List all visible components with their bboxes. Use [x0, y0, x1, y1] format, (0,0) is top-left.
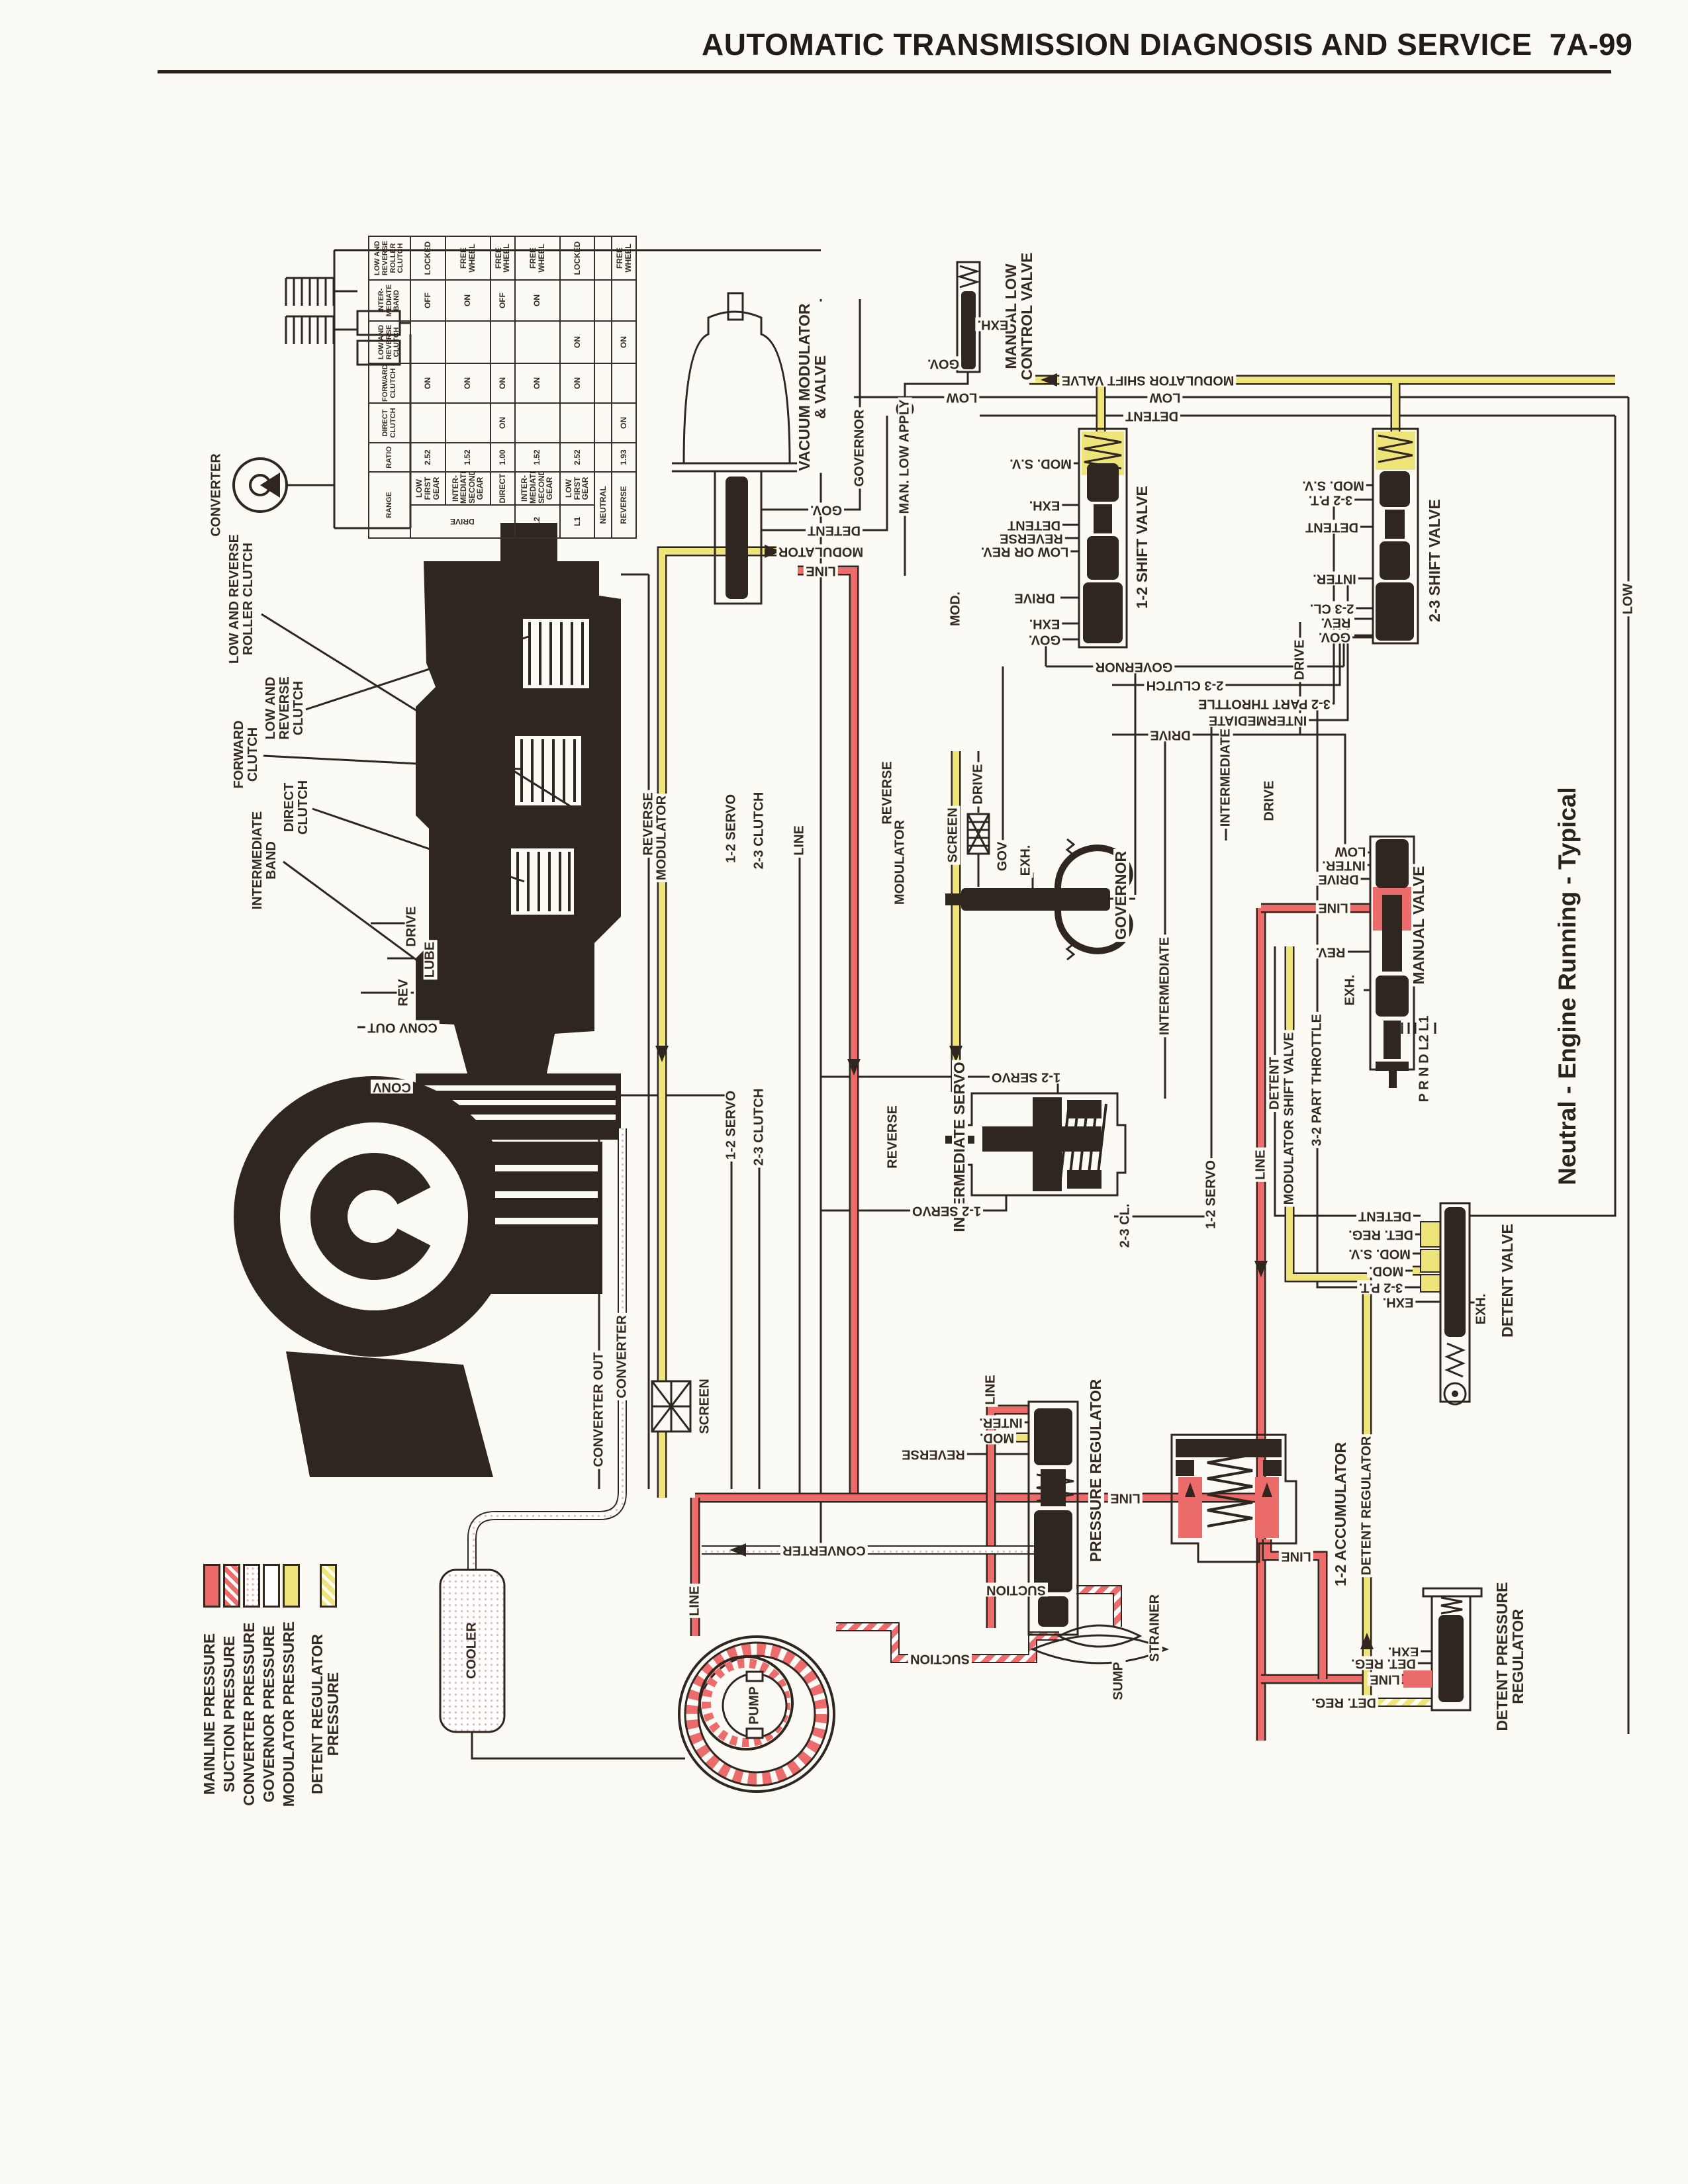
shift23-port-mod-sv: MOD. S.V.	[1300, 478, 1366, 492]
line-label-converter-a: CONVERTER	[616, 1313, 630, 1400]
pressure-regulator-port-reverse: REVERSE	[900, 1447, 967, 1461]
chart-cell	[594, 443, 612, 472]
pressure-regulator-title: PRESSURE REGULATOR	[1088, 1377, 1104, 1564]
manual-low-control-valve-title: MANUAL LOW CONTROL VALVE	[1004, 251, 1035, 383]
line-label-modulator-a: MODULATOR	[655, 794, 669, 882]
line-label-governor-a: GOVERNOR	[853, 408, 867, 489]
chart-cell: 2.52	[410, 443, 445, 472]
chart-cell: ON	[515, 363, 560, 403]
chart-cell: 1.93	[612, 443, 636, 472]
detent-valve-drawing	[1421, 1203, 1470, 1404]
chart-cell	[560, 403, 594, 443]
shift23-port-detent: DETENT	[1303, 520, 1360, 534]
chart-cell: LOCKED	[560, 236, 594, 280]
chart-header-band: INTER- MEDIATE BAND	[369, 280, 410, 321]
chart-cell: ON	[612, 321, 636, 363]
chart-header-direct: DIRECT CLUTCH	[369, 403, 410, 443]
chart-cell	[410, 321, 445, 363]
chart-cell: LOW FIRST GEAR	[410, 472, 445, 505]
chart-cell	[410, 403, 445, 443]
line-label-intermediate-c: INTERMEDIATE	[1158, 935, 1172, 1038]
chart-cell	[445, 321, 491, 363]
cooler-title: COOLER	[465, 1620, 479, 1681]
line-label-12servo-a: 1-2 SERVO	[725, 792, 739, 865]
chart-header-low-reverse: LOW AND REVERSE CLUTCH	[369, 321, 410, 363]
legend-label-governor: GOVERNOR PRESSURE	[261, 1623, 277, 1804]
line-label-detent-regulator: DETENT REGULATOR	[1360, 1434, 1374, 1577]
accumulator-12-title: 1-2 ACCUMULATOR	[1333, 1440, 1349, 1588]
chart-cell	[594, 363, 612, 403]
legend-label-converter: CONVERTER PRESSURE	[242, 1620, 258, 1807]
transmission-cross-section	[234, 523, 621, 1477]
legend-label-suction: SUCTION PRESSURE	[222, 1634, 238, 1794]
shift23-port-rev: REV.	[1319, 615, 1353, 629]
chart-range-l1: L1	[560, 505, 594, 538]
line-label-32pt-b: 3-2 PART THROTTLE	[1311, 1012, 1325, 1148]
shift-valve-12-title: 1-2 SHIFT VALVE	[1135, 484, 1150, 611]
shift23-port-32pt: 3-2 P.T.	[1307, 493, 1354, 507]
line-label-reverse-b: REVERSE	[881, 759, 895, 827]
manual-low-control-port-exh: EXH.	[976, 318, 1011, 332]
vacuum-modulator-title: VACUUM MODULATOR & VALVE	[797, 302, 829, 473]
line-label-suction-a: SUCTION	[908, 1652, 972, 1666]
sump-label: SUMP	[1112, 1660, 1126, 1702]
pressure-regulator-port-inter: INTER.	[977, 1416, 1025, 1430]
chart-cell	[594, 236, 612, 280]
line-label-line-d: LINE	[688, 1584, 702, 1618]
chart-cell: ON	[515, 280, 560, 321]
detent-valve-port-32pt: 3-2 P.T.	[1357, 1281, 1405, 1295]
line-label-drive-c: DRIVE	[1263, 778, 1277, 823]
chart-cell: LOW FIRST GEAR	[560, 472, 594, 505]
line-label-32pt-a: 3-2 PART THROTTLE	[1196, 697, 1333, 711]
application-chart: RANGE RATIO DIRECT CLUTCH FORWARD CLUTCH…	[368, 246, 637, 539]
line-label-low-b: LOW	[1148, 390, 1183, 404]
manual-valve-title: MANUAL VALVE	[1411, 864, 1427, 987]
chart-cell: INTER- MEDIATE SECOND GEAR	[515, 472, 560, 505]
figure-caption: Neutral - Engine Running - Typical	[1554, 787, 1581, 1185]
chart-cell	[515, 403, 560, 443]
servo-port-12servo-bottom: 1-2 SERVO	[910, 1204, 983, 1218]
chart-cell: ON	[560, 363, 594, 403]
detent-pressure-regulator-title: DETENT PRESSURE REGULATOR	[1495, 1580, 1526, 1733]
chart-cell	[612, 363, 636, 403]
chart-cell: ON	[445, 363, 491, 403]
line-label-governor-b: GOVERNOR	[1094, 660, 1175, 674]
chart-cell: ON	[445, 280, 491, 321]
manual-valve-port-rev: REV.	[1314, 945, 1348, 959]
chart-header-roller: LOW AND REVERSE ROLLER CLUTCH	[369, 236, 410, 280]
detent-valve-port-detent: DETENT	[1356, 1209, 1413, 1223]
chart-cell: 1.00	[491, 443, 515, 472]
chart-range-neutral: NEUTRAL	[594, 472, 612, 538]
legend-swatch-suction	[223, 1564, 240, 1608]
detent-valve-port-modsv: MOD. S.V.	[1346, 1247, 1413, 1261]
callout-low-reverse-roller-clutch: LOW AND REVERSE ROLLER CLUTCH	[228, 532, 256, 666]
detent-valve-port-exh-1: EXH.	[1381, 1295, 1416, 1309]
line-label-conv: CONV	[371, 1080, 413, 1094]
chart-cell: ON	[410, 363, 445, 403]
shift23-port-gov: GOV.	[1317, 630, 1352, 644]
chart-cell: FREE WHEEL	[445, 236, 491, 280]
line-label-drive-a: DRIVE	[1148, 728, 1192, 742]
line-label-12servo-b: 1-2 SERVO	[1205, 1158, 1219, 1231]
line-label-modulator-shift-valve: MODULATOR SHIFT VALVE	[1060, 373, 1237, 387]
line-label-23clutch-a: 2-3 CLUTCH	[1145, 678, 1226, 692]
line-label-12servo-c: 1-2 SERVO	[725, 1089, 739, 1161]
manual-valve-port-exh: EXH.	[1344, 973, 1358, 1008]
pressure-regulator-port-mod: MOD.	[978, 1431, 1016, 1445]
detent-valve-port-detreg: DET. REG.	[1346, 1228, 1415, 1242]
line-label-line-e: LINE	[1108, 1491, 1143, 1505]
legend-swatch-detent-regulator	[320, 1564, 337, 1608]
shift12-port-reverse: REVERSE	[998, 531, 1065, 545]
pressure-regulator-port-line: LINE	[984, 1373, 998, 1407]
line-label-intermediate-b: INTERMEDIATE	[1219, 727, 1233, 829]
line-label-23clutch-b: 2-3 CLUTCH	[753, 790, 767, 872]
detent-valve-port-exh-2: EXH.	[1475, 1292, 1489, 1327]
servo-port-23cl: 2-3 CL.	[1119, 1202, 1133, 1250]
manual-page: AUTOMATIC TRANSMISSION DIAGNOSIS AND SER…	[0, 0, 1688, 2184]
line-label-converter-out: CONVERTER OUT	[592, 1350, 606, 1469]
chart-cell	[560, 280, 594, 321]
chart-cell: ON	[491, 363, 515, 403]
suction-pressure-channels	[836, 1590, 1117, 1659]
intermediate-servo-drawing	[945, 1093, 1125, 1195]
line-label-line-a: LINE	[793, 823, 807, 858]
line-label-mod-a: MOD.	[949, 590, 963, 628]
callout-direct-clutch: DIRECT CLUTCH	[283, 778, 310, 837]
shift12-port-detent: DETENT	[1006, 518, 1062, 532]
shift12-port-gov: GOV.	[1027, 633, 1062, 647]
manual-valve-quadrant: P R N D L2 L1	[1418, 1014, 1432, 1105]
shift12-port-exh-2: EXH.	[1027, 617, 1062, 631]
legend-label-modulator: MODULATOR PRESSURE	[281, 1619, 297, 1809]
shift-valve-23-title: 2-3 SHIFT VALVE	[1427, 497, 1443, 624]
shift-valve-23-drawing	[1373, 429, 1418, 643]
accumulator-12-drawing	[1172, 1435, 1296, 1562]
dpr-port-line: LINE	[1368, 1672, 1402, 1686]
shift-valve-12-drawing	[1079, 429, 1127, 647]
chart-cell	[612, 280, 636, 321]
shift12-port-exh-1: EXH.	[1027, 498, 1062, 512]
line-label-lube: LUBE	[424, 940, 438, 979]
legend-swatch-mainline	[203, 1564, 220, 1608]
accumulator-port-line: LINE	[1279, 1549, 1313, 1563]
pressure-regulator-port-suction: SUCTION	[984, 1583, 1048, 1597]
screen-drawing	[652, 1381, 690, 1432]
vacuum-modulator-port-modulator: MODULATOR	[776, 545, 865, 559]
line-label-drive-b: DRIVE	[1293, 637, 1307, 682]
chart-cell: LOCKED	[410, 236, 445, 280]
governor-drawing	[945, 814, 1135, 960]
dpr-port-detreg-1: DET. REG.	[1349, 1657, 1418, 1670]
line-label-rev: REV	[397, 977, 411, 1008]
legend-label-mainline: MAINLINE PRESSURE	[202, 1631, 218, 1797]
legend-swatch-modulator	[283, 1564, 300, 1608]
pump-title: PUMP	[748, 1684, 762, 1727]
governor-port-drive: DRIVE	[972, 762, 986, 806]
callout-forward-clutch: FORWARD CLUTCH	[232, 719, 260, 791]
strainer-label: STRAINER	[1149, 1592, 1162, 1664]
manual-low-control-port-gov: GOV.	[925, 357, 961, 371]
line-label-low-a: LOW	[945, 390, 980, 404]
detent-valve-port-mod: MOD.	[1367, 1264, 1405, 1278]
line-label-reverse-a: REVERSE	[642, 790, 656, 858]
governor-port-gov: GOV	[996, 840, 1010, 873]
line-label-screen: SCREEN	[698, 1377, 712, 1435]
callout-low-reverse-clutch: LOW AND REVERSE CLUTCH	[264, 674, 305, 742]
chart-range-l2: L2	[515, 505, 560, 538]
line-label-line-b: LINE	[1254, 1148, 1268, 1182]
detent-valve-title: DETENT VALVE	[1500, 1222, 1516, 1340]
chart-cell	[515, 321, 560, 363]
converter-schematic-title: CONVERTER	[210, 451, 224, 539]
pump-drawing	[679, 1542, 834, 1792]
shift12-port-mod-sv: MOD. S.V.	[1008, 457, 1074, 471]
line-label-msv-b: MODULATOR SHIFT VALVE	[1283, 1030, 1297, 1207]
line-label-converter-b: CONVERTER	[780, 1543, 868, 1557]
manual-valve-port-low: LOW	[1333, 844, 1368, 858]
vacuum-modulator-port-line: LINE	[804, 564, 838, 578]
legend-swatch-converter	[243, 1564, 260, 1608]
line-label-modulator-b: MODULATOR	[894, 818, 908, 907]
vacuum-modulator-port-gov: GOV.	[808, 503, 844, 517]
line-label-low-c: LOW	[1622, 582, 1636, 617]
shift12-port-drive: DRIVE	[1012, 591, 1056, 605]
chart-header-range: RANGE	[369, 472, 410, 538]
shift23-port-inter: INTER.	[1311, 572, 1358, 586]
chart-cell: FREE WHEEL	[515, 236, 560, 280]
chart-cell: DIRECT	[491, 472, 515, 505]
legend-label-detent-regulator: DETENT REGULATOR PRESSURE	[310, 1632, 342, 1796]
manual-valve-port-drive: DRIVE	[1316, 872, 1360, 886]
chart-cell: 1.52	[445, 443, 491, 472]
line-label-reverse-c: REVERSE	[886, 1103, 900, 1171]
chart-cell: INTER- MEDIATE SECOND GEAR	[445, 472, 491, 505]
line-label-man-low-apply: MAN. LOW APPLY	[898, 398, 912, 516]
chart-cell	[594, 403, 612, 443]
chart-cell: ON	[560, 321, 594, 363]
chart-cell: OFF	[410, 280, 445, 321]
chart-cell: FREE WHEEL	[612, 236, 636, 280]
chart-cell	[445, 403, 491, 443]
manual-valve-port-inter: INTER.	[1320, 858, 1368, 872]
line-label-intermediate-a: INTERMEDIATE	[1207, 713, 1309, 727]
line-label-detent-a: DETENT	[1123, 409, 1180, 423]
chart-cell	[491, 321, 515, 363]
line-label-conv-out: CONV OUT	[365, 1021, 440, 1034]
line-label-drive-d: DRIVE	[405, 904, 419, 948]
line-label-23clutch-c: 2-3 CLUTCH	[753, 1087, 767, 1168]
chart-cell: 2.52	[560, 443, 594, 472]
manual-valve-port-line: LINE	[1316, 901, 1350, 915]
shift23-port-23cl: 2-3 CL.	[1308, 602, 1356, 615]
chart-cell	[594, 280, 612, 321]
chart-cell	[594, 321, 612, 363]
chart-range-drive: DRIVE	[410, 505, 514, 538]
dpr-port-detreg-2: DET. REG.	[1309, 1696, 1378, 1709]
chart-cell: ON	[612, 403, 636, 443]
governor-port-exh: EXH.	[1019, 843, 1033, 878]
servo-port-12servo-top: 1-2 SERVO	[990, 1070, 1062, 1084]
chart-cell: FREE WHEEL	[491, 236, 515, 280]
chart-header-forward: FORWARD CLUTCH	[369, 363, 410, 403]
governor-title: GOVERNOR	[1113, 849, 1129, 942]
chart-header-ratio: RATIO	[369, 443, 410, 472]
chart-cell: OFF	[491, 280, 515, 321]
governor-screen-label: SCREEN	[947, 805, 961, 864]
chart-cell: ON	[491, 403, 515, 443]
callout-intermediate-band: INTERMEDIATE BAND	[251, 809, 279, 912]
chart-range-reverse: REVERSE	[612, 472, 636, 538]
line-label-detent-b: DETENT	[1268, 1055, 1282, 1112]
hydraulic-diagram: .k{stroke:#2e261f;stroke-width:3;fill:no…	[0, 0, 1688, 2184]
chart-cell: 1.52	[515, 443, 560, 472]
shift12-port-low-or-rev: LOW OR REV.	[979, 545, 1071, 559]
vacuum-modulator-port-detent: DETENT	[806, 523, 863, 537]
legend-swatch-governor	[263, 1564, 280, 1608]
